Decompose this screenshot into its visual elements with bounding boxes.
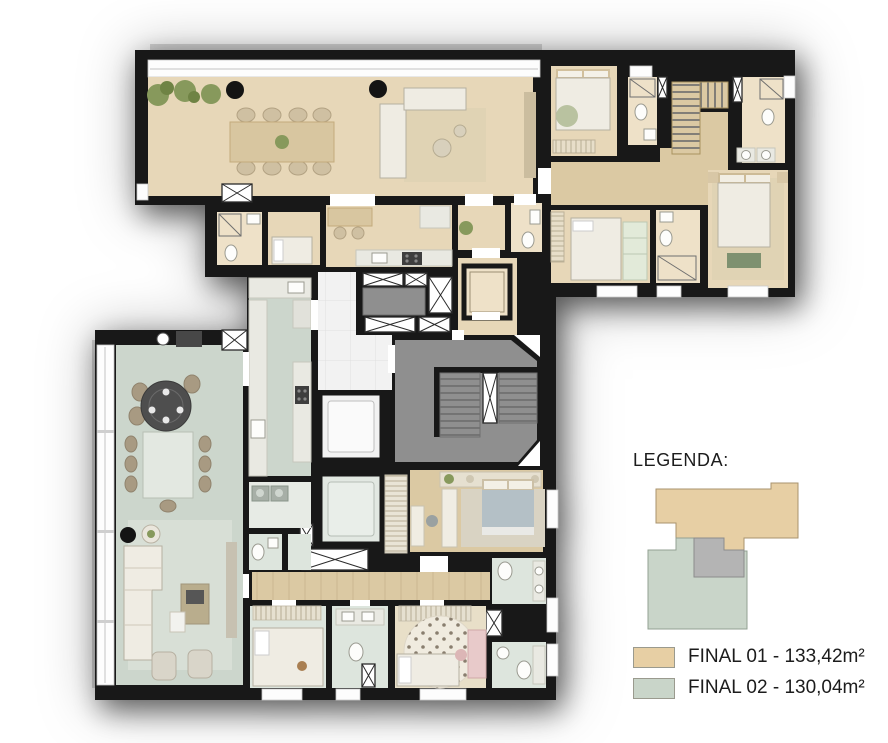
maid-bed (272, 237, 312, 264)
floorplan-page: LEGENDA: FINAL 01 - 133,42m² FINAL 02 - … (0, 0, 888, 743)
legend-key-map (639, 479, 807, 637)
legend-swatch-final01 (633, 647, 675, 668)
master-bed-final01 (708, 172, 788, 280)
entry-plant (459, 221, 473, 235)
column (369, 80, 387, 98)
legend-label-final01: FINAL 01 - 133,42m² (688, 646, 865, 668)
tv-console (226, 542, 237, 638)
sofa-set-final02 (120, 520, 237, 680)
column (120, 527, 136, 543)
teddy-bear (297, 661, 307, 671)
elevator-service (320, 474, 382, 544)
elevator-social (320, 393, 382, 460)
grill (176, 331, 202, 347)
legend-swatch-final02 (633, 678, 675, 699)
bathroom-suite (492, 558, 546, 604)
corridor-final01 (551, 162, 706, 205)
bathroom-2-final02 (492, 642, 546, 688)
legend: LEGENDA: FINAL 01 - 133,42m² FINAL 02 - … (633, 450, 861, 699)
legend-item-final02: FINAL 02 - 130,04m² (633, 677, 861, 699)
balcony-rail (150, 44, 542, 50)
elevator-final01 (464, 266, 510, 320)
unit-final-01 (137, 60, 795, 342)
legend-title: LEGENDA: (633, 450, 861, 471)
column (226, 81, 244, 99)
tv-console (524, 92, 536, 178)
bed-bench (727, 253, 761, 268)
legend-item-final01: FINAL 01 - 133,42m² (633, 646, 861, 668)
wall-clock (157, 333, 169, 345)
children-bedroom (395, 606, 486, 688)
bathroom-middle (332, 606, 388, 688)
laundry (249, 482, 311, 528)
legend-label-final02: FINAL 02 - 130,04m² (688, 677, 865, 699)
service-counter (363, 288, 425, 315)
duct-shaft (222, 184, 252, 202)
bedroom-2-bottom (250, 606, 326, 688)
kitchen-final02 (243, 278, 318, 476)
wc-service (249, 534, 311, 570)
kids-desk (468, 630, 486, 678)
